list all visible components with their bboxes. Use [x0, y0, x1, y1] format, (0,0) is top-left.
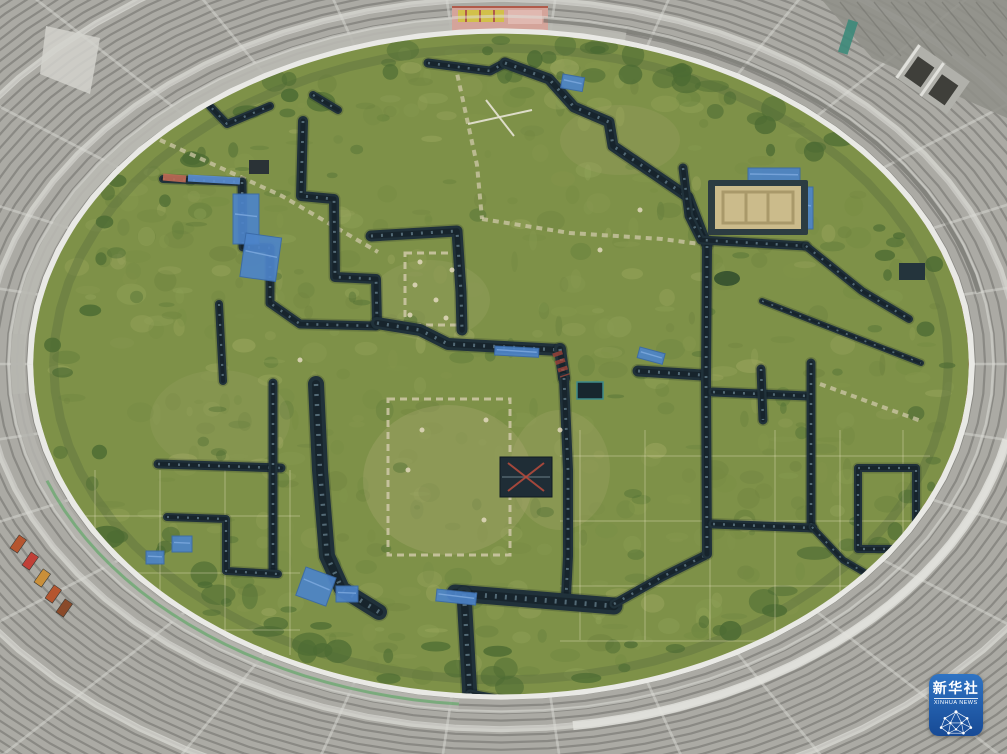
aerial-photo-stage: 新华社 XINHUA NEWS — [0, 0, 1007, 754]
watermark-divider — [934, 698, 977, 699]
stadium-aerial-photo — [0, 0, 1007, 754]
network-globe-icon — [937, 709, 975, 735]
cover-tent — [500, 457, 552, 497]
xinhua-english-label: XINHUA NEWS — [934, 700, 978, 706]
xinhua-chinese-label: 新华社 — [933, 681, 980, 696]
excavation-pit — [708, 180, 808, 235]
xinhua-news-badge: 新华社 XINHUA NEWS — [929, 674, 983, 736]
